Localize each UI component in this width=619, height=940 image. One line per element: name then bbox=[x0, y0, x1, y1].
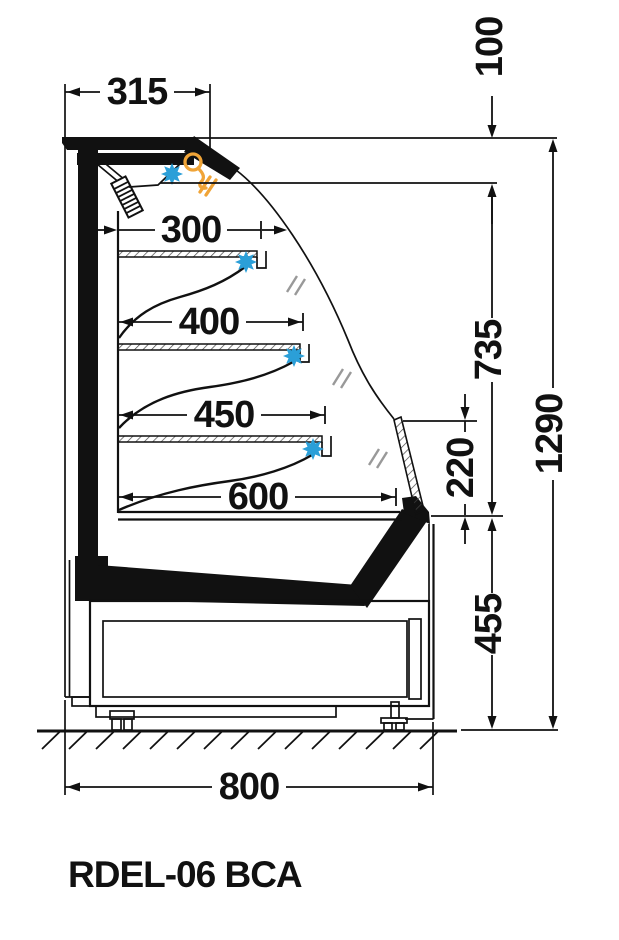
shelf-3 bbox=[118, 436, 322, 442]
dimension-735-label: 735 bbox=[468, 319, 510, 380]
model-title: RDEL-06 BCA bbox=[68, 854, 302, 895]
fan-icon bbox=[283, 345, 305, 367]
dimension-450-label: 450 bbox=[194, 394, 254, 436]
dimension-1290-label: 1290 bbox=[529, 394, 571, 475]
shelf-2 bbox=[118, 344, 300, 350]
dimension-600-label: 600 bbox=[228, 476, 288, 518]
dimension-300-label: 300 bbox=[161, 209, 221, 251]
fan-icon bbox=[235, 251, 257, 273]
fan-icon bbox=[302, 438, 324, 460]
dimension-800-label: 800 bbox=[219, 766, 279, 808]
dimension-400-label: 400 bbox=[179, 301, 239, 343]
dimension-220-label: 220 bbox=[440, 438, 482, 498]
shelf-1 bbox=[118, 251, 257, 257]
technical-drawing: 315 300 400 450 600 800 bbox=[0, 0, 619, 940]
dimension-315-label: 315 bbox=[107, 71, 168, 113]
dimension-100-label: 100 bbox=[469, 17, 511, 77]
dimension-455-label: 455 bbox=[468, 593, 510, 654]
back-wall bbox=[78, 148, 98, 561]
fan-icon bbox=[161, 163, 183, 185]
